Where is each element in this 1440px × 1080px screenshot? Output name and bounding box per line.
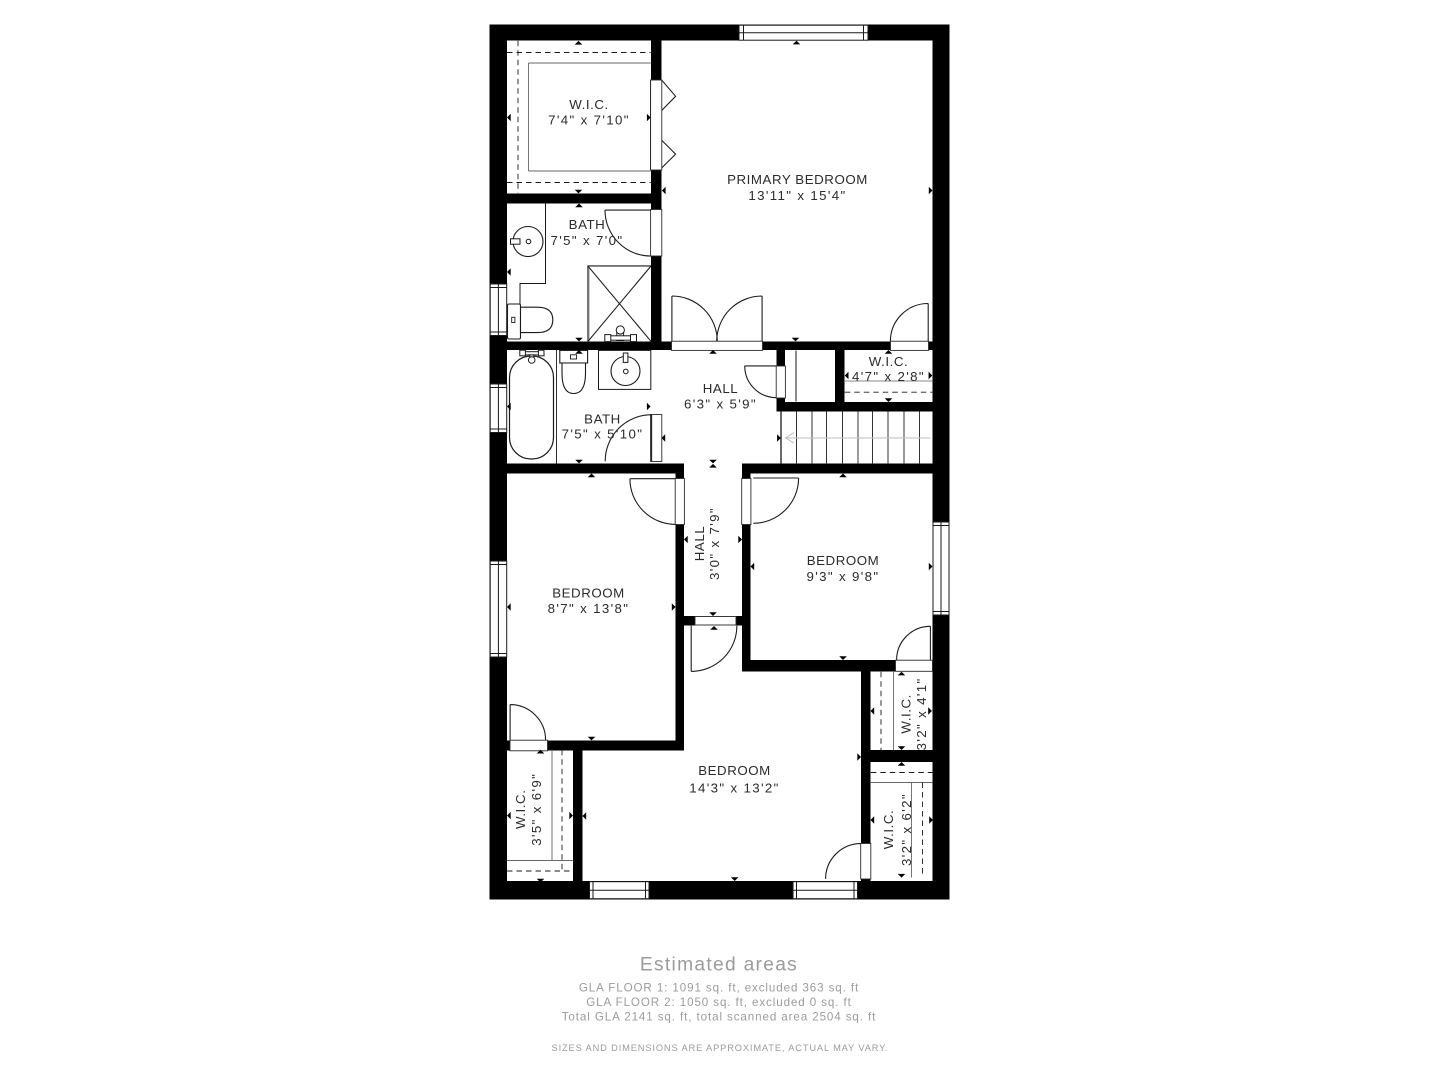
svg-text:W.I.C.: W.I.C. [513, 790, 528, 830]
svg-text:8'7" x 13'8": 8'7" x 13'8" [548, 601, 630, 616]
svg-text:Total GLA 2141 sq. ft, total s: Total GLA 2141 sq. ft, total scanned are… [562, 1011, 877, 1024]
svg-text:9'3" x 9'8": 9'3" x 9'8" [807, 569, 880, 584]
svg-text:W.I.C.: W.I.C. [869, 354, 909, 369]
svg-text:GLA FLOOR 2: 1050 sq. ft, excl: GLA FLOOR 2: 1050 sq. ft, excluded 0 sq.… [586, 996, 852, 1009]
svg-text:HALL: HALL [703, 381, 738, 396]
svg-text:7'4" x 7'10": 7'4" x 7'10" [548, 113, 630, 128]
svg-text:BEDROOM: BEDROOM [698, 763, 771, 778]
svg-text:13'11" x 15'4": 13'11" x 15'4" [748, 188, 846, 203]
svg-text:4'7" x 2'8": 4'7" x 2'8" [852, 369, 925, 384]
svg-text:W.I.C.: W.I.C. [899, 694, 914, 734]
svg-text:3'5" x 6'9": 3'5" x 6'9" [529, 773, 544, 846]
svg-text:7'5" x 7'0": 7'5" x 7'0" [551, 233, 624, 248]
svg-text:PRIMARY BEDROOM: PRIMARY BEDROOM [727, 172, 868, 187]
svg-text:3'2" x 4'1": 3'2" x 4'1" [914, 677, 929, 750]
svg-text:GLA FLOOR 1: 1091 sq. ft, excl: GLA FLOOR 1: 1091 sq. ft, excluded 363 s… [579, 982, 859, 995]
svg-text:BATH: BATH [584, 411, 621, 426]
svg-text:14'3" x 13'2": 14'3" x 13'2" [689, 780, 779, 795]
svg-text:SIZES AND DIMENSIONS ARE APPRO: SIZES AND DIMENSIONS ARE APPROXIMATE, AC… [552, 1043, 889, 1053]
svg-text:3'0" x 7'9": 3'0" x 7'9" [707, 507, 722, 580]
svg-text:7'5" x 5'10": 7'5" x 5'10" [562, 427, 644, 442]
svg-text:Estimated areas: Estimated areas [640, 955, 798, 976]
svg-text:W.I.C.: W.I.C. [569, 97, 609, 112]
svg-text:BEDROOM: BEDROOM [552, 586, 625, 601]
svg-text:W.I.C.: W.I.C. [881, 810, 896, 850]
svg-text:BATH: BATH [569, 217, 606, 232]
svg-text:HALL: HALL [692, 526, 707, 561]
svg-text:3'2" x 6'2": 3'2" x 6'2" [899, 793, 914, 866]
svg-text:6'3" x 5'9": 6'3" x 5'9" [684, 397, 757, 412]
svg-text:BEDROOM: BEDROOM [807, 553, 880, 568]
